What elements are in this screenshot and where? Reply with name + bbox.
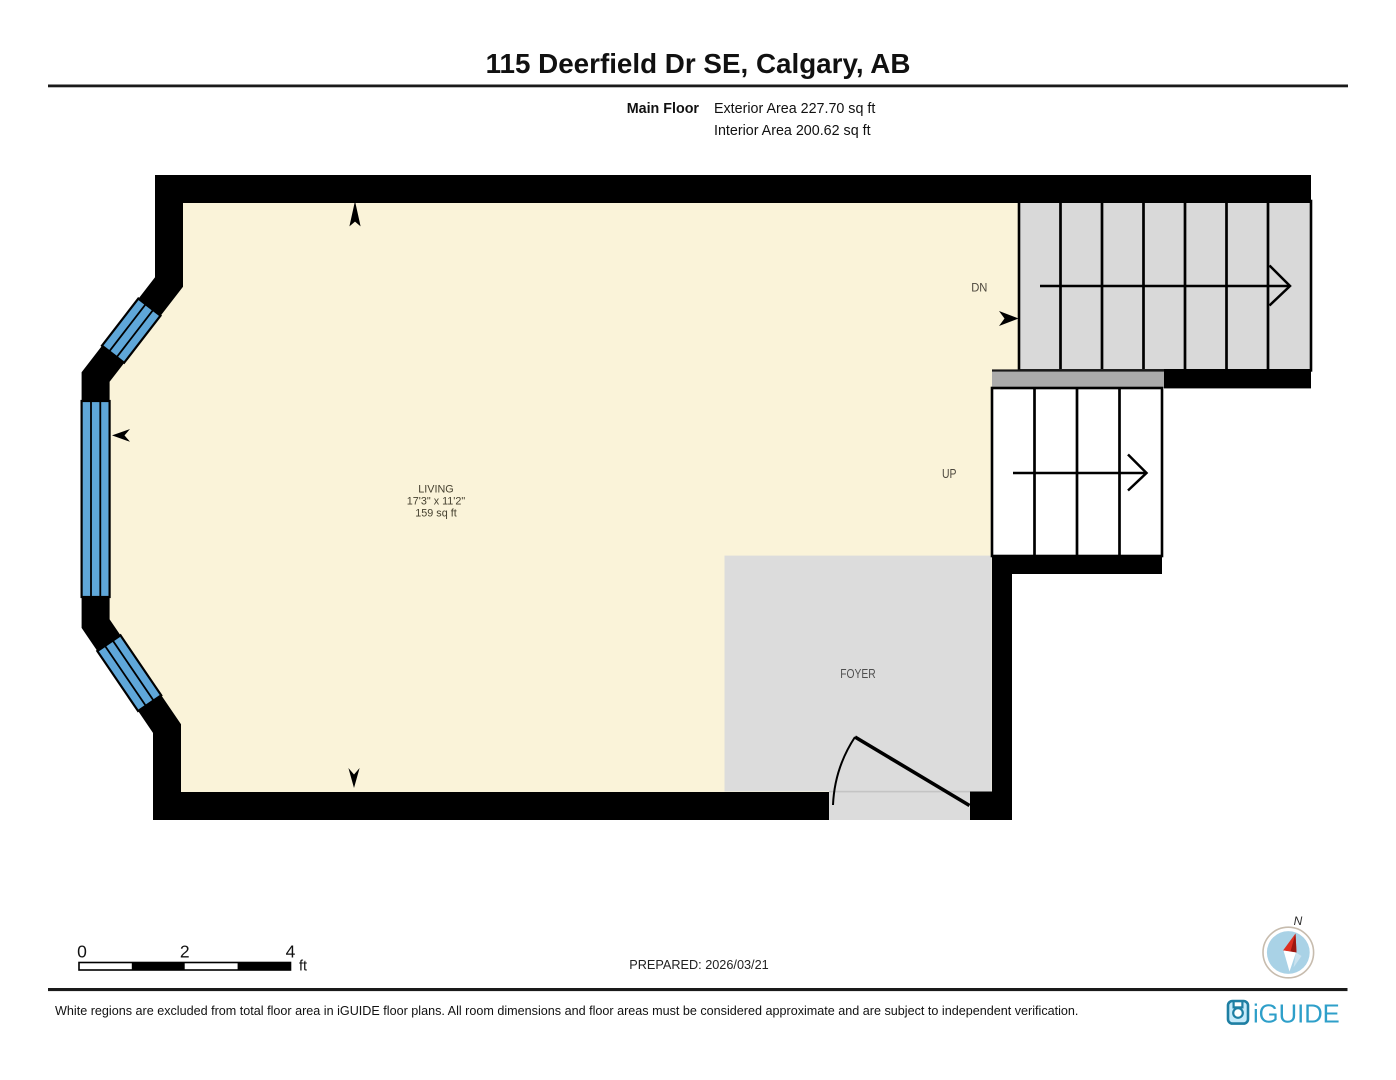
svg-text:159 sq ft: 159 sq ft xyxy=(415,507,456,519)
svg-text:DN: DN xyxy=(971,280,987,294)
svg-text:PREPARED: 2026/03/21: PREPARED: 2026/03/21 xyxy=(629,958,768,972)
svg-text:17'3" x 11'2": 17'3" x 11'2" xyxy=(407,496,466,508)
svg-text:Exterior Area 227.70 sq ft: Exterior Area 227.70 sq ft xyxy=(714,101,875,117)
svg-text:2: 2 xyxy=(180,942,190,962)
svg-text:4: 4 xyxy=(286,942,296,962)
svg-text:Interior Area 200.62 sq ft: Interior Area 200.62 sq ft xyxy=(714,123,871,139)
svg-text:0: 0 xyxy=(77,942,87,962)
svg-text:ft: ft xyxy=(299,959,307,975)
svg-text:LIVING: LIVING xyxy=(418,483,453,495)
svg-text:UP: UP xyxy=(942,466,957,481)
svg-text:N: N xyxy=(1294,914,1303,928)
svg-text:iGUIDE: iGUIDE xyxy=(1253,1001,1340,1029)
svg-text:White regions are excluded fro: White regions are excluded from total fl… xyxy=(55,1004,1078,1018)
svg-text:115 Deerfield Dr SE, Calgary,: 115 Deerfield Dr SE, Calgary, AB xyxy=(486,48,911,79)
svg-text:Main Floor: Main Floor xyxy=(627,101,700,117)
svg-text:FOYER: FOYER xyxy=(840,666,876,681)
